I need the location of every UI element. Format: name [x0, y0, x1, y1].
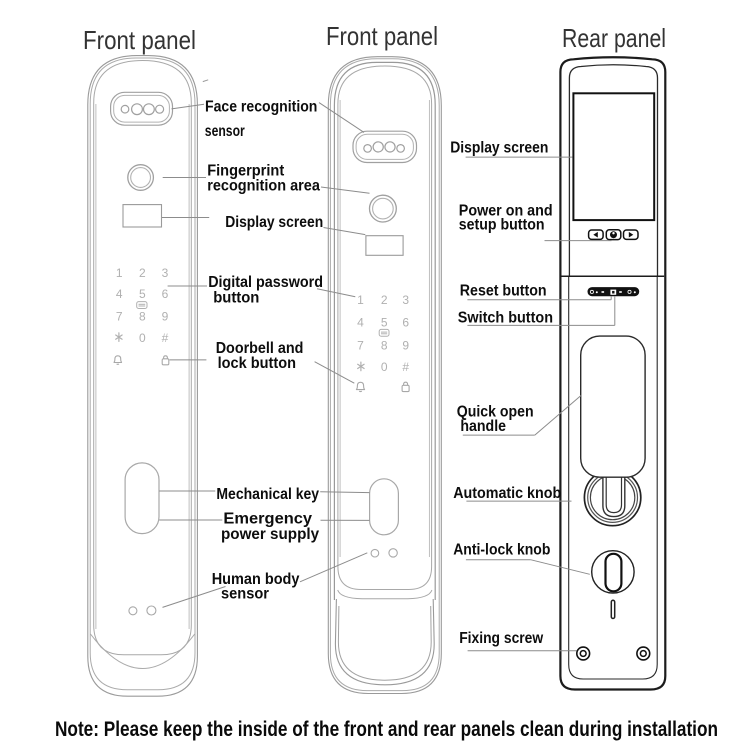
svg-text:Display screen: Display screen — [450, 139, 548, 156]
svg-text:button: button — [213, 290, 259, 307]
svg-text:lock button: lock button — [218, 355, 296, 372]
svg-text:Emergency: Emergency — [223, 510, 312, 527]
svg-text:1: 1 — [116, 266, 123, 280]
svg-text:9: 9 — [162, 309, 169, 323]
svg-text:handle: handle — [460, 418, 506, 435]
svg-text:setup button: setup button — [459, 217, 545, 234]
svg-text:6: 6 — [162, 287, 169, 301]
svg-text:0: 0 — [381, 360, 388, 374]
svg-text:Front panel: Front panel — [83, 25, 196, 55]
svg-text:7: 7 — [116, 309, 123, 323]
svg-text:Display screen: Display screen — [225, 214, 323, 231]
svg-text:4: 4 — [357, 315, 364, 329]
svg-text:power supply: power supply — [221, 526, 319, 543]
svg-text:5: 5 — [381, 315, 388, 329]
svg-text:recognition area: recognition area — [207, 177, 320, 194]
svg-text:Rear panel: Rear panel — [562, 23, 666, 53]
svg-text:Front panel: Front panel — [326, 21, 438, 51]
svg-text:2: 2 — [139, 266, 146, 280]
svg-text:#: # — [162, 331, 169, 345]
svg-text:Automatic knob: Automatic knob — [453, 485, 561, 502]
svg-text:6: 6 — [402, 315, 409, 329]
svg-text:Reset button: Reset button — [460, 282, 547, 299]
svg-text:Switch button: Switch button — [458, 309, 553, 326]
svg-text:9: 9 — [402, 338, 409, 352]
svg-text:Anti-lock knob: Anti-lock knob — [453, 542, 550, 559]
svg-text:Note: Please keep the inside o: Note: Please keep the inside of the fron… — [55, 718, 718, 741]
svg-text:5: 5 — [139, 287, 146, 301]
svg-text:Mechanical key: Mechanical key — [216, 486, 319, 503]
svg-text:8: 8 — [139, 309, 146, 323]
svg-text:#: # — [402, 360, 409, 374]
svg-text:8: 8 — [381, 338, 388, 352]
svg-text:1: 1 — [357, 293, 364, 307]
svg-text:Fixing screw: Fixing screw — [459, 630, 544, 647]
svg-text:3: 3 — [402, 293, 409, 307]
svg-text:7: 7 — [357, 338, 364, 352]
svg-text:0: 0 — [139, 331, 146, 345]
svg-text:Face recognition: Face recognition — [205, 99, 317, 116]
svg-text:2: 2 — [381, 293, 388, 307]
svg-text:4: 4 — [116, 287, 123, 301]
svg-text:3: 3 — [162, 266, 169, 280]
svg-text:sensor: sensor — [205, 123, 245, 140]
svg-text:sensor: sensor — [221, 585, 269, 602]
